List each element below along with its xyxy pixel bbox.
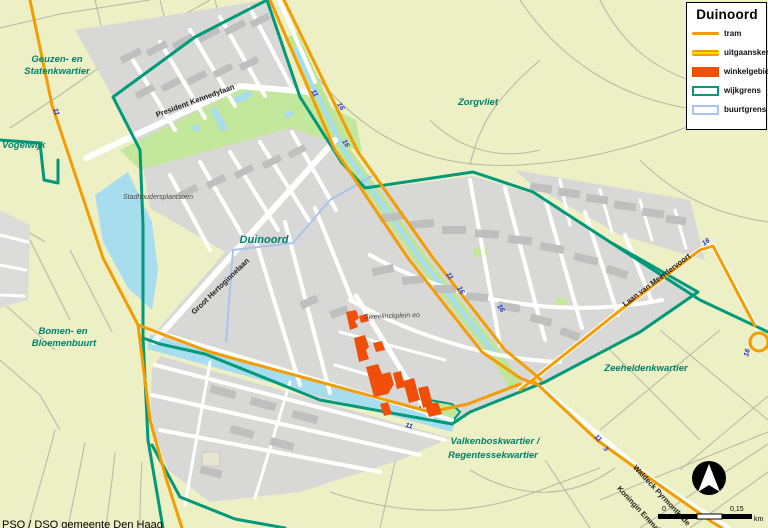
district-label-bomen-1: Bomen- en: [38, 326, 87, 337]
district-label-geuzen-2: Statenkwartier: [24, 66, 91, 77]
district-label-valkenbos-2: Regentessekwartier: [448, 450, 539, 461]
street-label-stadhouders: Stadhoudersplantsoen: [123, 194, 193, 201]
legend-item-buurtgrens: buurtgrens: [692, 104, 762, 115]
winkelgebied-swatch-icon: [692, 67, 719, 77]
legend-item-winkelgebied: winkelgebied: [692, 66, 762, 77]
legend-item-uitgaanskern: uitgaanskern: [692, 47, 762, 58]
building-bar: [434, 285, 456, 293]
legend-item-label: tram: [724, 29, 741, 38]
map-credit: PSO / DSO gemeente Den Haag: [2, 519, 163, 528]
legend-title: Duinoord: [692, 7, 762, 22]
legend-panel: Duinoord tram uitgaanskern winkelgebied …: [686, 2, 767, 130]
district-label-zorgvliet: Zorgvliet: [457, 97, 499, 108]
landmark-building: [202, 452, 220, 466]
legend-item-tram: tram: [692, 28, 762, 39]
map-page: President Kennedylaan Groot Hertoginnela…: [0, 0, 768, 528]
legend-item-label: uitgaanskern: [724, 48, 768, 57]
legend-item-wijkgrens: wijkgrens: [692, 85, 762, 96]
map-canvas: President Kennedylaan Groot Hertoginnela…: [0, 0, 768, 528]
tram-line-icon: [692, 32, 719, 35]
north-arrow: [692, 461, 726, 495]
building-bar: [475, 229, 499, 238]
scale-start: 0: [662, 506, 666, 513]
district-label-valkenbos-1: Valkenboskwartier /: [451, 436, 541, 447]
scale-end: 0,15: [730, 506, 744, 513]
uitgaanskern-line-icon: [692, 50, 719, 56]
legend-item-label: buurtgrens: [724, 105, 766, 114]
urban-left-sliver: [0, 210, 30, 308]
buurtgrens-swatch-icon: [692, 105, 719, 115]
district-label-geuzen-1: Geuzen- en: [31, 54, 82, 65]
district-label-duinoord: Duinoord: [240, 234, 289, 246]
wijkgrens-swatch-icon: [692, 86, 719, 96]
district-label-vogelwijk: Vogelwijk: [2, 140, 46, 151]
district-label-bomen-2: Bloemenbuurt: [32, 338, 97, 349]
legend-item-label: winkelgebied: [724, 67, 768, 76]
district-label-zeehelden: Zeeheldenkwartier: [603, 363, 689, 374]
legend-item-label: wijkgrens: [724, 86, 761, 95]
scale-unit: km: [754, 516, 764, 523]
building-bar: [442, 226, 466, 234]
